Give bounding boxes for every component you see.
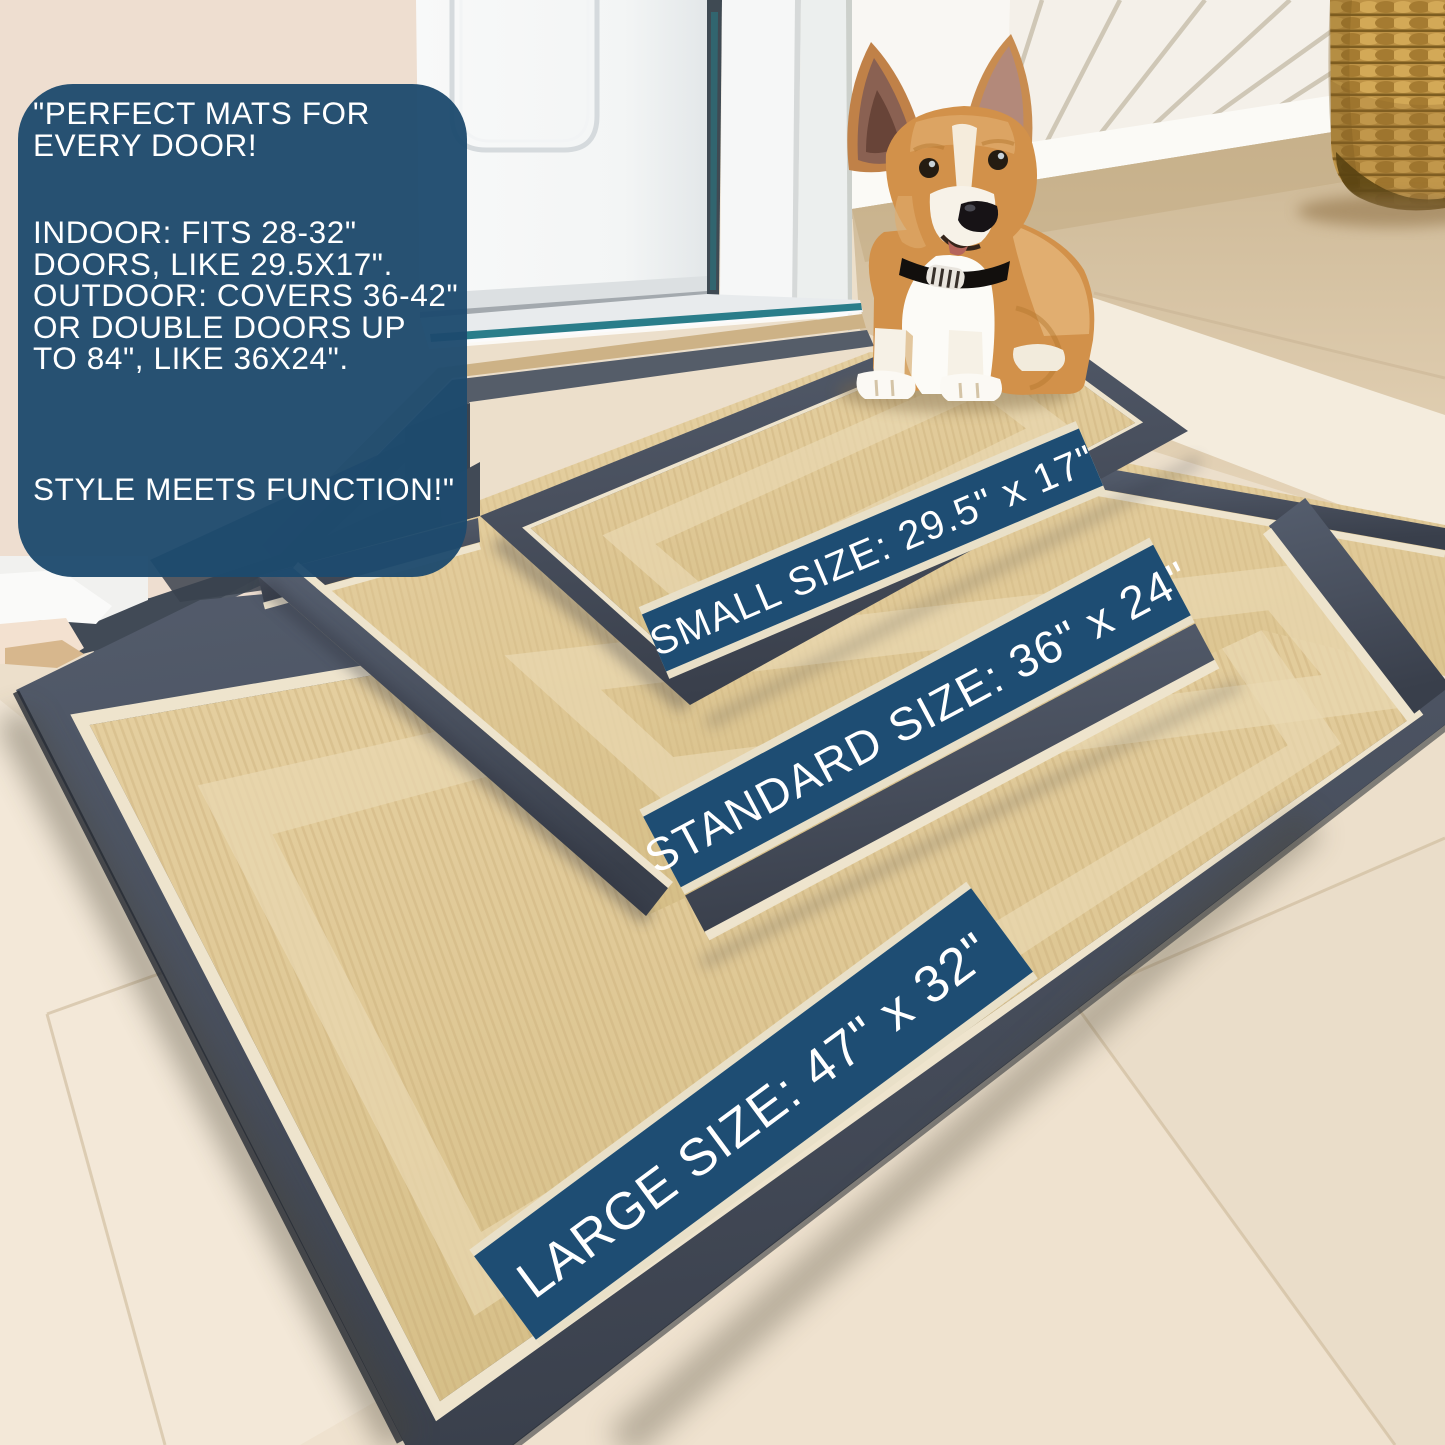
svg-text:OUTDOOR: COVERS 36-42": OUTDOOR: COVERS 36-42": [33, 277, 458, 313]
svg-text:INDOOR: FITS 28-32": INDOOR: FITS 28-32": [33, 214, 357, 250]
svg-text:STYLE MEETS FUNCTION!": STYLE MEETS FUNCTION!": [33, 471, 455, 507]
svg-text:EVERY DOOR!: EVERY DOOR!: [33, 127, 257, 163]
svg-text:TO 84", LIKE 36X24".: TO 84", LIKE 36X24".: [33, 340, 349, 376]
svg-text:"PERFECT MATS FOR: "PERFECT MATS FOR: [33, 95, 370, 131]
